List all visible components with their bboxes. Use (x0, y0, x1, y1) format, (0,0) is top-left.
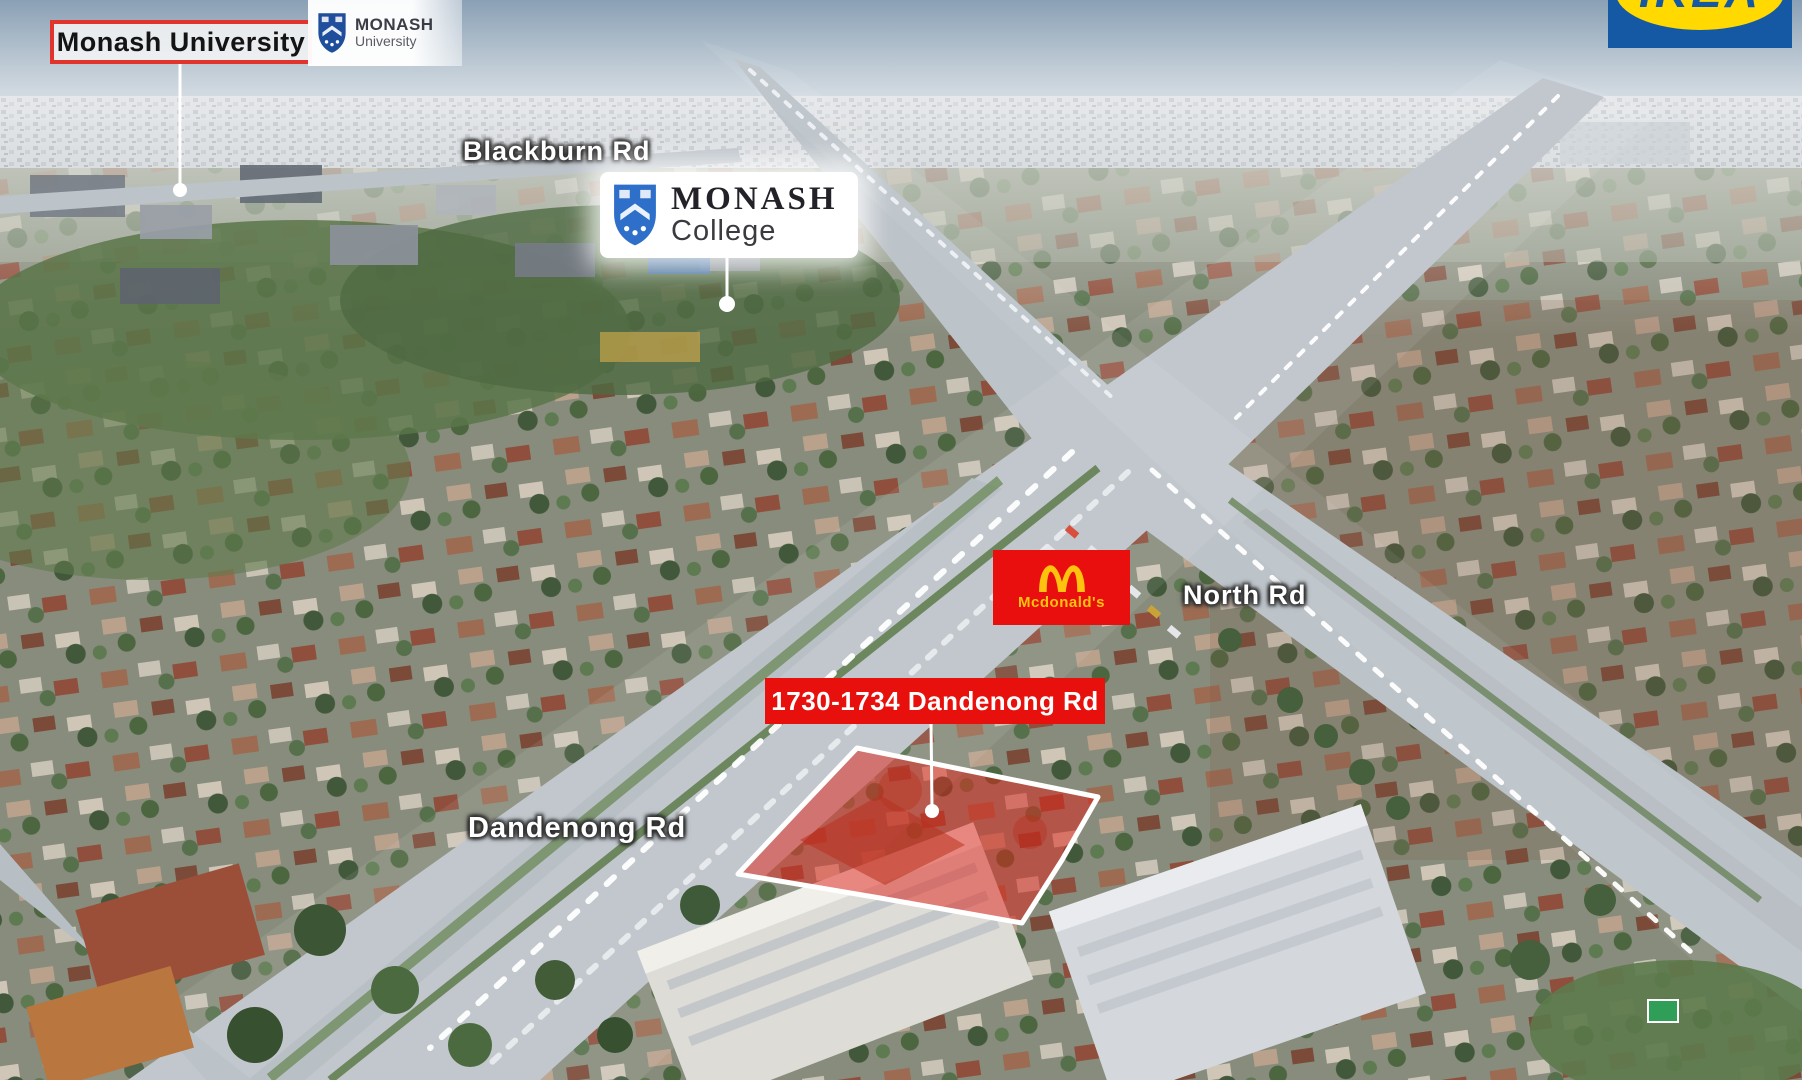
mcdonalds-arches-icon (1036, 564, 1088, 592)
dandenong-rd-label: Dandenong Rd (468, 812, 686, 845)
monash-university-logo-wordmark: MONASH (355, 16, 434, 33)
monash-college-crest-icon (612, 182, 658, 248)
mcdonalds-logo: Mcdonald's (993, 550, 1130, 625)
monash-university-logo: MONASH University (308, 0, 462, 66)
monash-university-crest-icon (317, 11, 347, 55)
aerial-photo-scene: Monash University MONASH University Blac… (0, 0, 1802, 1080)
monash-university-label: Monash University (50, 20, 312, 64)
property-boundary-highlight (738, 748, 1098, 923)
property-address-label: 1730-1734 Dandenong Rd (765, 678, 1105, 724)
ikea-wordmark: IKEA (1608, 0, 1792, 18)
monash-college-logo: MONASH College (600, 172, 858, 258)
annotation-overlay (0, 0, 1802, 1080)
monash-college-logo-subtext: College (671, 216, 838, 248)
mcdonalds-wordmark: Mcdonald's (1018, 594, 1105, 611)
blackburn-rd-label: Blackburn Rd (463, 136, 651, 167)
monash-university-logo-subtext: University (355, 33, 434, 50)
north-rd-label: North Rd (1183, 580, 1306, 611)
ikea-logo: IKEA (1608, 0, 1792, 48)
monash-college-logo-wordmark: MONASH (671, 183, 838, 216)
